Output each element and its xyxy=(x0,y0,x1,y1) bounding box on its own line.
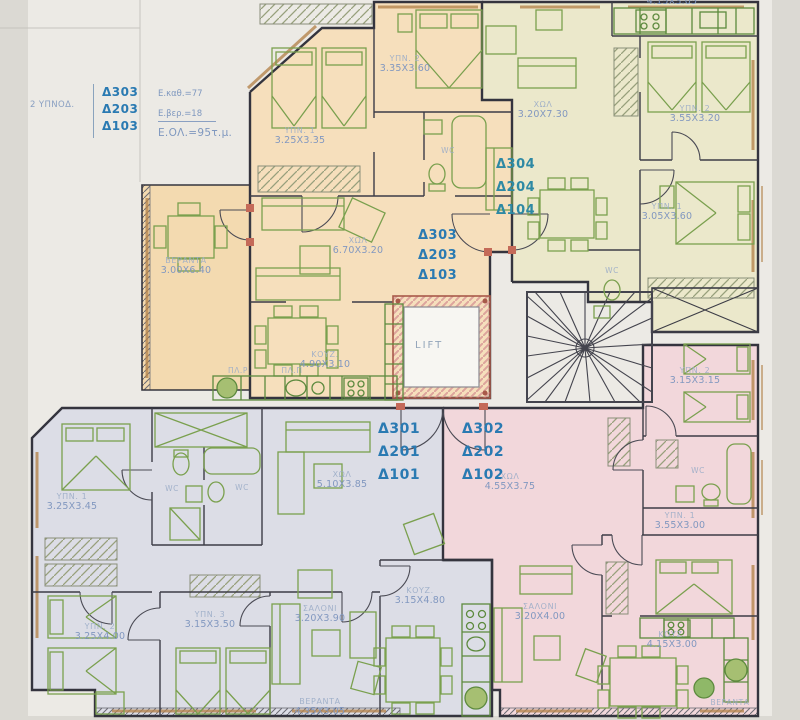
legend-divider xyxy=(93,84,94,138)
unit-stack-303: Δ303 Δ203 Δ103 xyxy=(418,226,457,286)
floor-plan: 2 ΥΠΝΟΔ. Δ303 Δ203 Δ103 Ε.καθ.=77 Ε.βερ.… xyxy=(0,0,800,720)
unit-stack-304: Δ304 Δ204 Δ104 xyxy=(496,153,535,222)
lift-label: LIFT xyxy=(415,340,443,351)
unit-stack-303-legend: Δ303 Δ203 Δ103 xyxy=(102,84,138,135)
legend-bedroom-type: 2 ΥΠΝΟΔ. xyxy=(30,100,74,110)
unit-stack-301: Δ301 Δ201 Δ101 xyxy=(378,418,420,487)
legend-areas: Ε.καθ.=77 Ε.βερ.=18 Ε.ΟΛ.=95τ.μ. xyxy=(158,88,232,139)
unit-stack-302: Δ302 Δ202 Δ102 xyxy=(462,418,504,487)
